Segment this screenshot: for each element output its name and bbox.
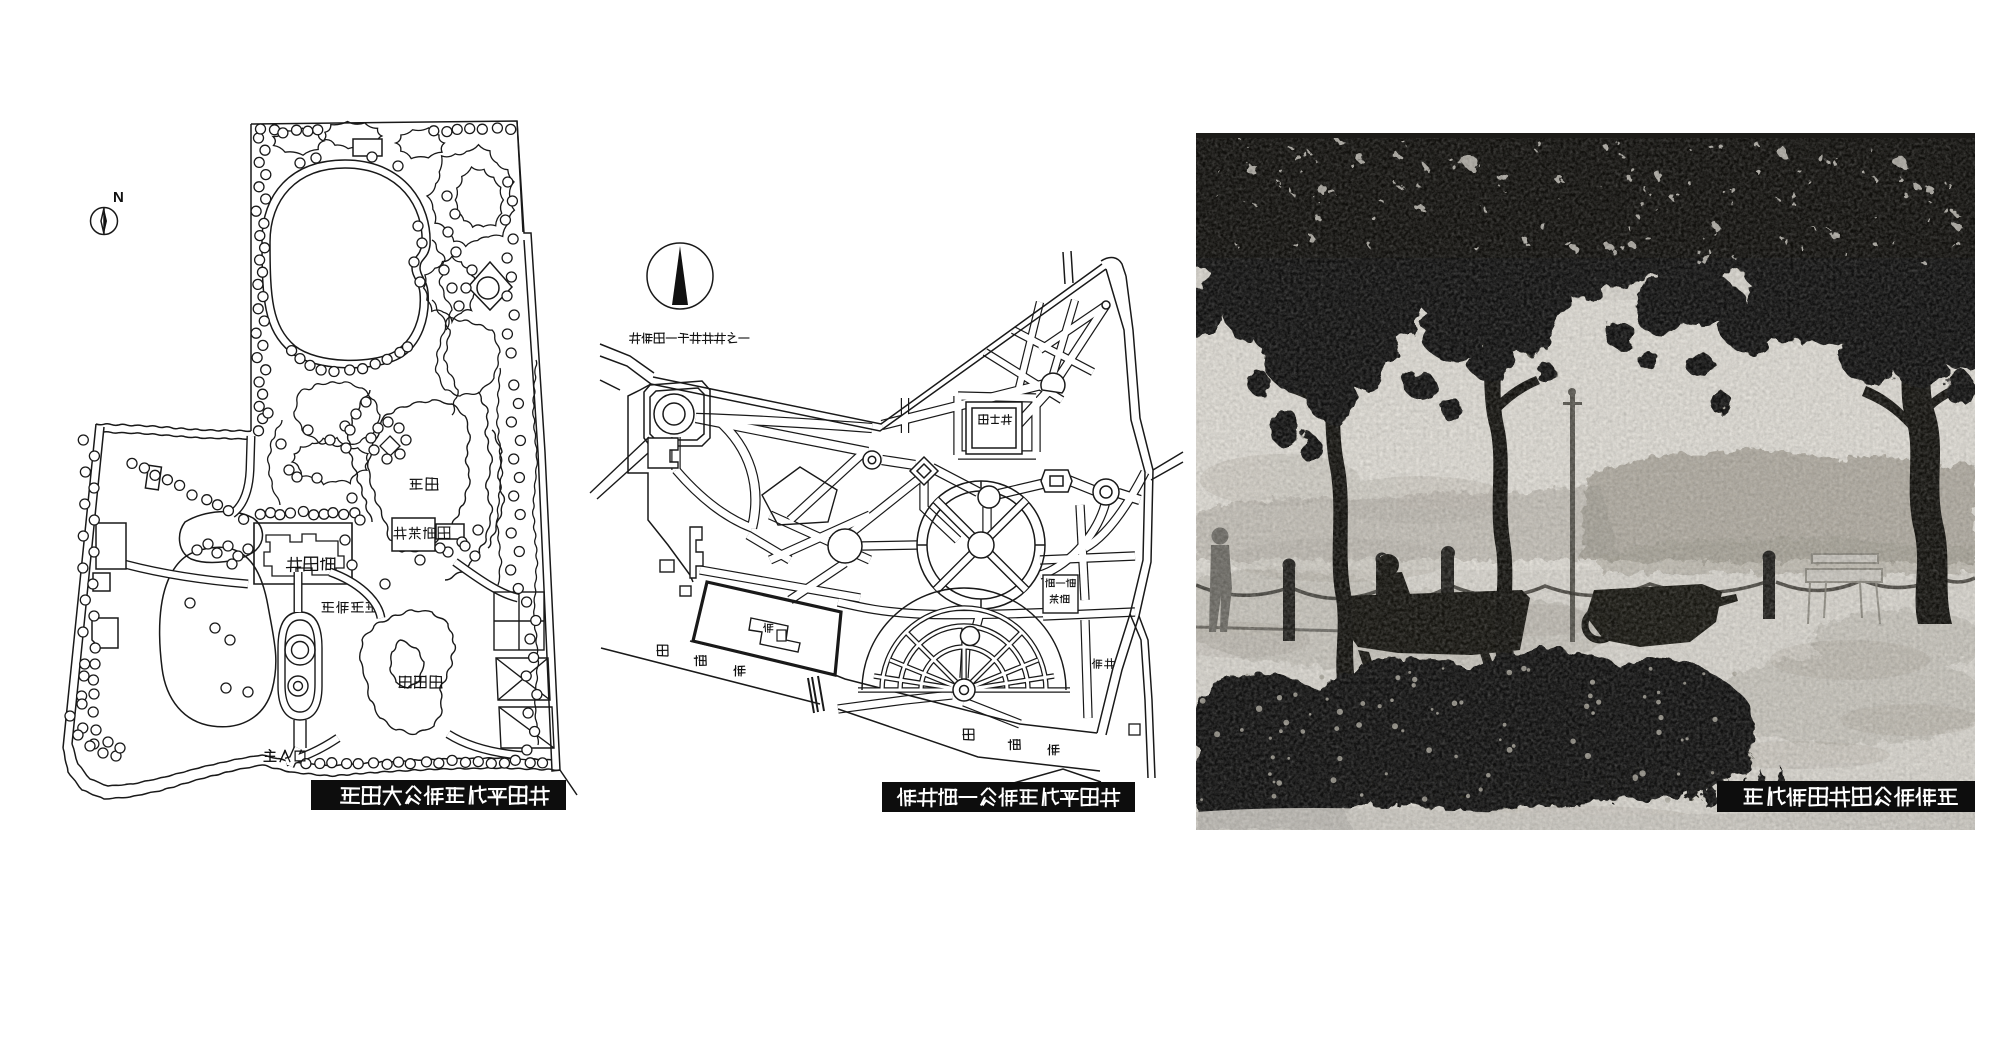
svg-text:N: N	[113, 189, 124, 206]
